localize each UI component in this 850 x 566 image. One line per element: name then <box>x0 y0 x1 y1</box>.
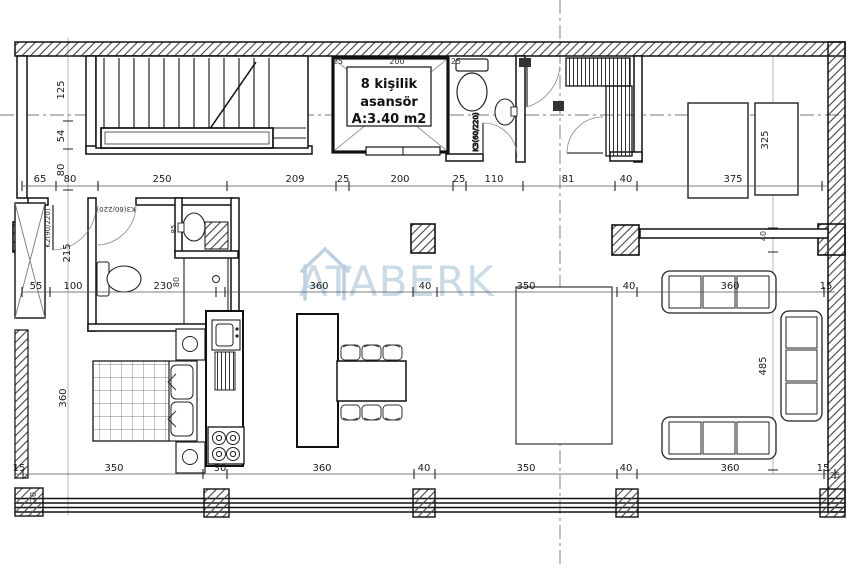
dim-label: 15 <box>13 463 26 474</box>
door-stop-block <box>553 101 564 111</box>
entry-door-label: K2(90/220) <box>44 208 52 247</box>
burner-center <box>216 451 221 456</box>
dim-label: 375 <box>723 174 742 185</box>
kitchen-drainer <box>215 352 235 390</box>
pier <box>204 489 229 517</box>
dim-label: 80 <box>56 164 67 177</box>
dim-label: 350 <box>516 281 535 292</box>
dining-chair <box>362 405 381 420</box>
column <box>411 224 435 253</box>
nightstand-lamp <box>183 337 198 352</box>
bath-sink-tap <box>178 223 184 232</box>
bed-blanket <box>93 361 169 441</box>
dining-table <box>337 361 406 401</box>
dim-label: 15 <box>820 281 833 292</box>
dim-label: 40 <box>419 281 432 292</box>
kitchen-sink-basin <box>216 324 233 346</box>
burner-center <box>230 451 235 456</box>
dim-label: 350 <box>104 463 123 474</box>
bath-door-label: K3(60/220) <box>96 205 135 213</box>
dim-label: 250 <box>152 174 171 185</box>
sofa-cushion <box>703 422 735 454</box>
dim-label: 25 <box>451 57 461 66</box>
kitchen-island <box>297 314 338 447</box>
elevator-label-line1: 8 kişilik <box>361 77 418 92</box>
wc-sink-tap <box>511 107 517 116</box>
shower-drain <box>213 276 220 283</box>
wardrobe-side <box>606 86 632 156</box>
stairs-handrail <box>101 128 273 148</box>
pier <box>616 489 638 517</box>
dim-label: 40 <box>623 281 636 292</box>
wall-top <box>15 42 845 56</box>
stove <box>208 427 244 464</box>
burner-center <box>216 435 221 440</box>
dim-label: 360 <box>720 281 739 292</box>
wall-east <box>640 229 828 238</box>
nightstand-lamp <box>183 450 198 465</box>
dim-label: 40 <box>620 463 633 474</box>
dim-label: 40 <box>759 231 768 241</box>
dim-label: 25 <box>333 57 343 66</box>
wc-room: K3(60/220) <box>456 59 517 157</box>
column <box>612 225 639 255</box>
bathroom: K3(60/220) 85 <box>96 205 228 324</box>
bedroom <box>93 329 205 473</box>
floor-plan-svg: 8 kişilik asansör A:3.40 m2 K3(60/220) <box>0 0 850 566</box>
wall-stairs-left <box>86 56 96 153</box>
staircase <box>96 56 308 148</box>
dim-label: 360 <box>58 388 69 407</box>
wall-bath-partition-h <box>175 251 238 258</box>
dining-chair <box>362 345 381 360</box>
dim-label: 40 <box>620 174 633 185</box>
dim-label: 350 <box>516 463 535 474</box>
dim-label: 15 <box>817 463 830 474</box>
dim-label: 20 <box>29 492 38 502</box>
wall-left-upper <box>17 56 27 198</box>
bath-sink-dim: 85 <box>170 225 178 234</box>
dining-chair <box>341 405 360 420</box>
sofa-cushion <box>669 422 701 454</box>
elevator-label-line3: A:3.40 m2 <box>352 112 427 127</box>
kitchen-tap <box>235 327 238 330</box>
dim-label: 125 <box>56 80 67 99</box>
dim-label: 360 <box>309 281 328 292</box>
pier <box>413 489 435 517</box>
bed-pillow <box>171 402 193 436</box>
pier <box>820 489 845 517</box>
dim-label: 25 <box>337 174 350 185</box>
kitchen <box>206 311 338 466</box>
living-room <box>516 271 822 459</box>
wardrobe-top <box>566 58 630 86</box>
dim-label: 80 <box>172 277 181 287</box>
dim-label: 360 <box>720 463 739 474</box>
bath-sink <box>183 213 205 241</box>
dim-label: 325 <box>760 130 771 149</box>
dim-label: 55 <box>30 281 43 292</box>
closet-door2-arc <box>567 117 603 153</box>
dim-label: 25 <box>830 471 840 480</box>
desks <box>688 103 798 198</box>
elevator: 8 kişilik asansör A:3.40 m2 <box>333 58 448 155</box>
wall-left-lower <box>15 330 28 478</box>
sofa-cushion <box>786 317 817 348</box>
dim-label: 215 <box>62 243 73 262</box>
bath-toilet-bowl <box>107 266 141 292</box>
entry-area: K2(90/220) <box>15 203 96 318</box>
shower-hatch <box>205 222 228 249</box>
dining <box>337 345 406 420</box>
burner-center <box>230 435 235 440</box>
closet-area <box>519 58 632 156</box>
wc-door-label: K3(60/220) <box>472 112 480 151</box>
dining-chair <box>383 345 402 360</box>
door-stop-block <box>519 58 531 67</box>
dim-label: 360 <box>312 463 331 474</box>
dim-label: 40 <box>418 463 431 474</box>
sofa-cushion <box>737 422 769 454</box>
elevator-label-line2: asansör <box>360 95 418 110</box>
dining-chair <box>383 405 402 420</box>
bed-pillow <box>171 365 193 399</box>
dim-label: 209 <box>285 174 304 185</box>
dim-label: 30 <box>214 463 227 474</box>
wall-bath-top <box>136 198 233 205</box>
dim-label: 485 <box>758 356 769 375</box>
sofa-bottom <box>662 417 776 459</box>
dim-label: 54 <box>56 130 67 143</box>
toilet-bowl <box>457 73 487 111</box>
sofa-cushion <box>786 383 817 414</box>
kitchen-tap <box>235 334 238 337</box>
wall-wc-bottom <box>446 154 483 161</box>
dim-label: 110 <box>484 174 503 185</box>
closet-door1-arc <box>527 66 560 107</box>
dim-label: 81 <box>562 174 575 185</box>
wall-bath-left <box>88 198 96 331</box>
floor-plan: 8 kişilik asansör A:3.40 m2 K3(60/220) <box>0 0 850 566</box>
dim-label: 100 <box>63 281 82 292</box>
wall-right <box>828 42 845 512</box>
watermark: ATABERK <box>299 249 495 306</box>
dim-label: 200 <box>390 174 409 185</box>
wall-closet-right <box>634 56 642 162</box>
dim-label: 230 <box>153 281 172 292</box>
dining-chair <box>341 345 360 360</box>
dim-label: 200 <box>389 57 404 66</box>
sofa-right <box>781 311 822 421</box>
rug <box>516 287 612 444</box>
dim-label: 65 <box>34 174 47 185</box>
wc-door-arc <box>483 123 517 157</box>
sofa-cushion <box>786 350 817 381</box>
dim-label: 25 <box>453 174 466 185</box>
